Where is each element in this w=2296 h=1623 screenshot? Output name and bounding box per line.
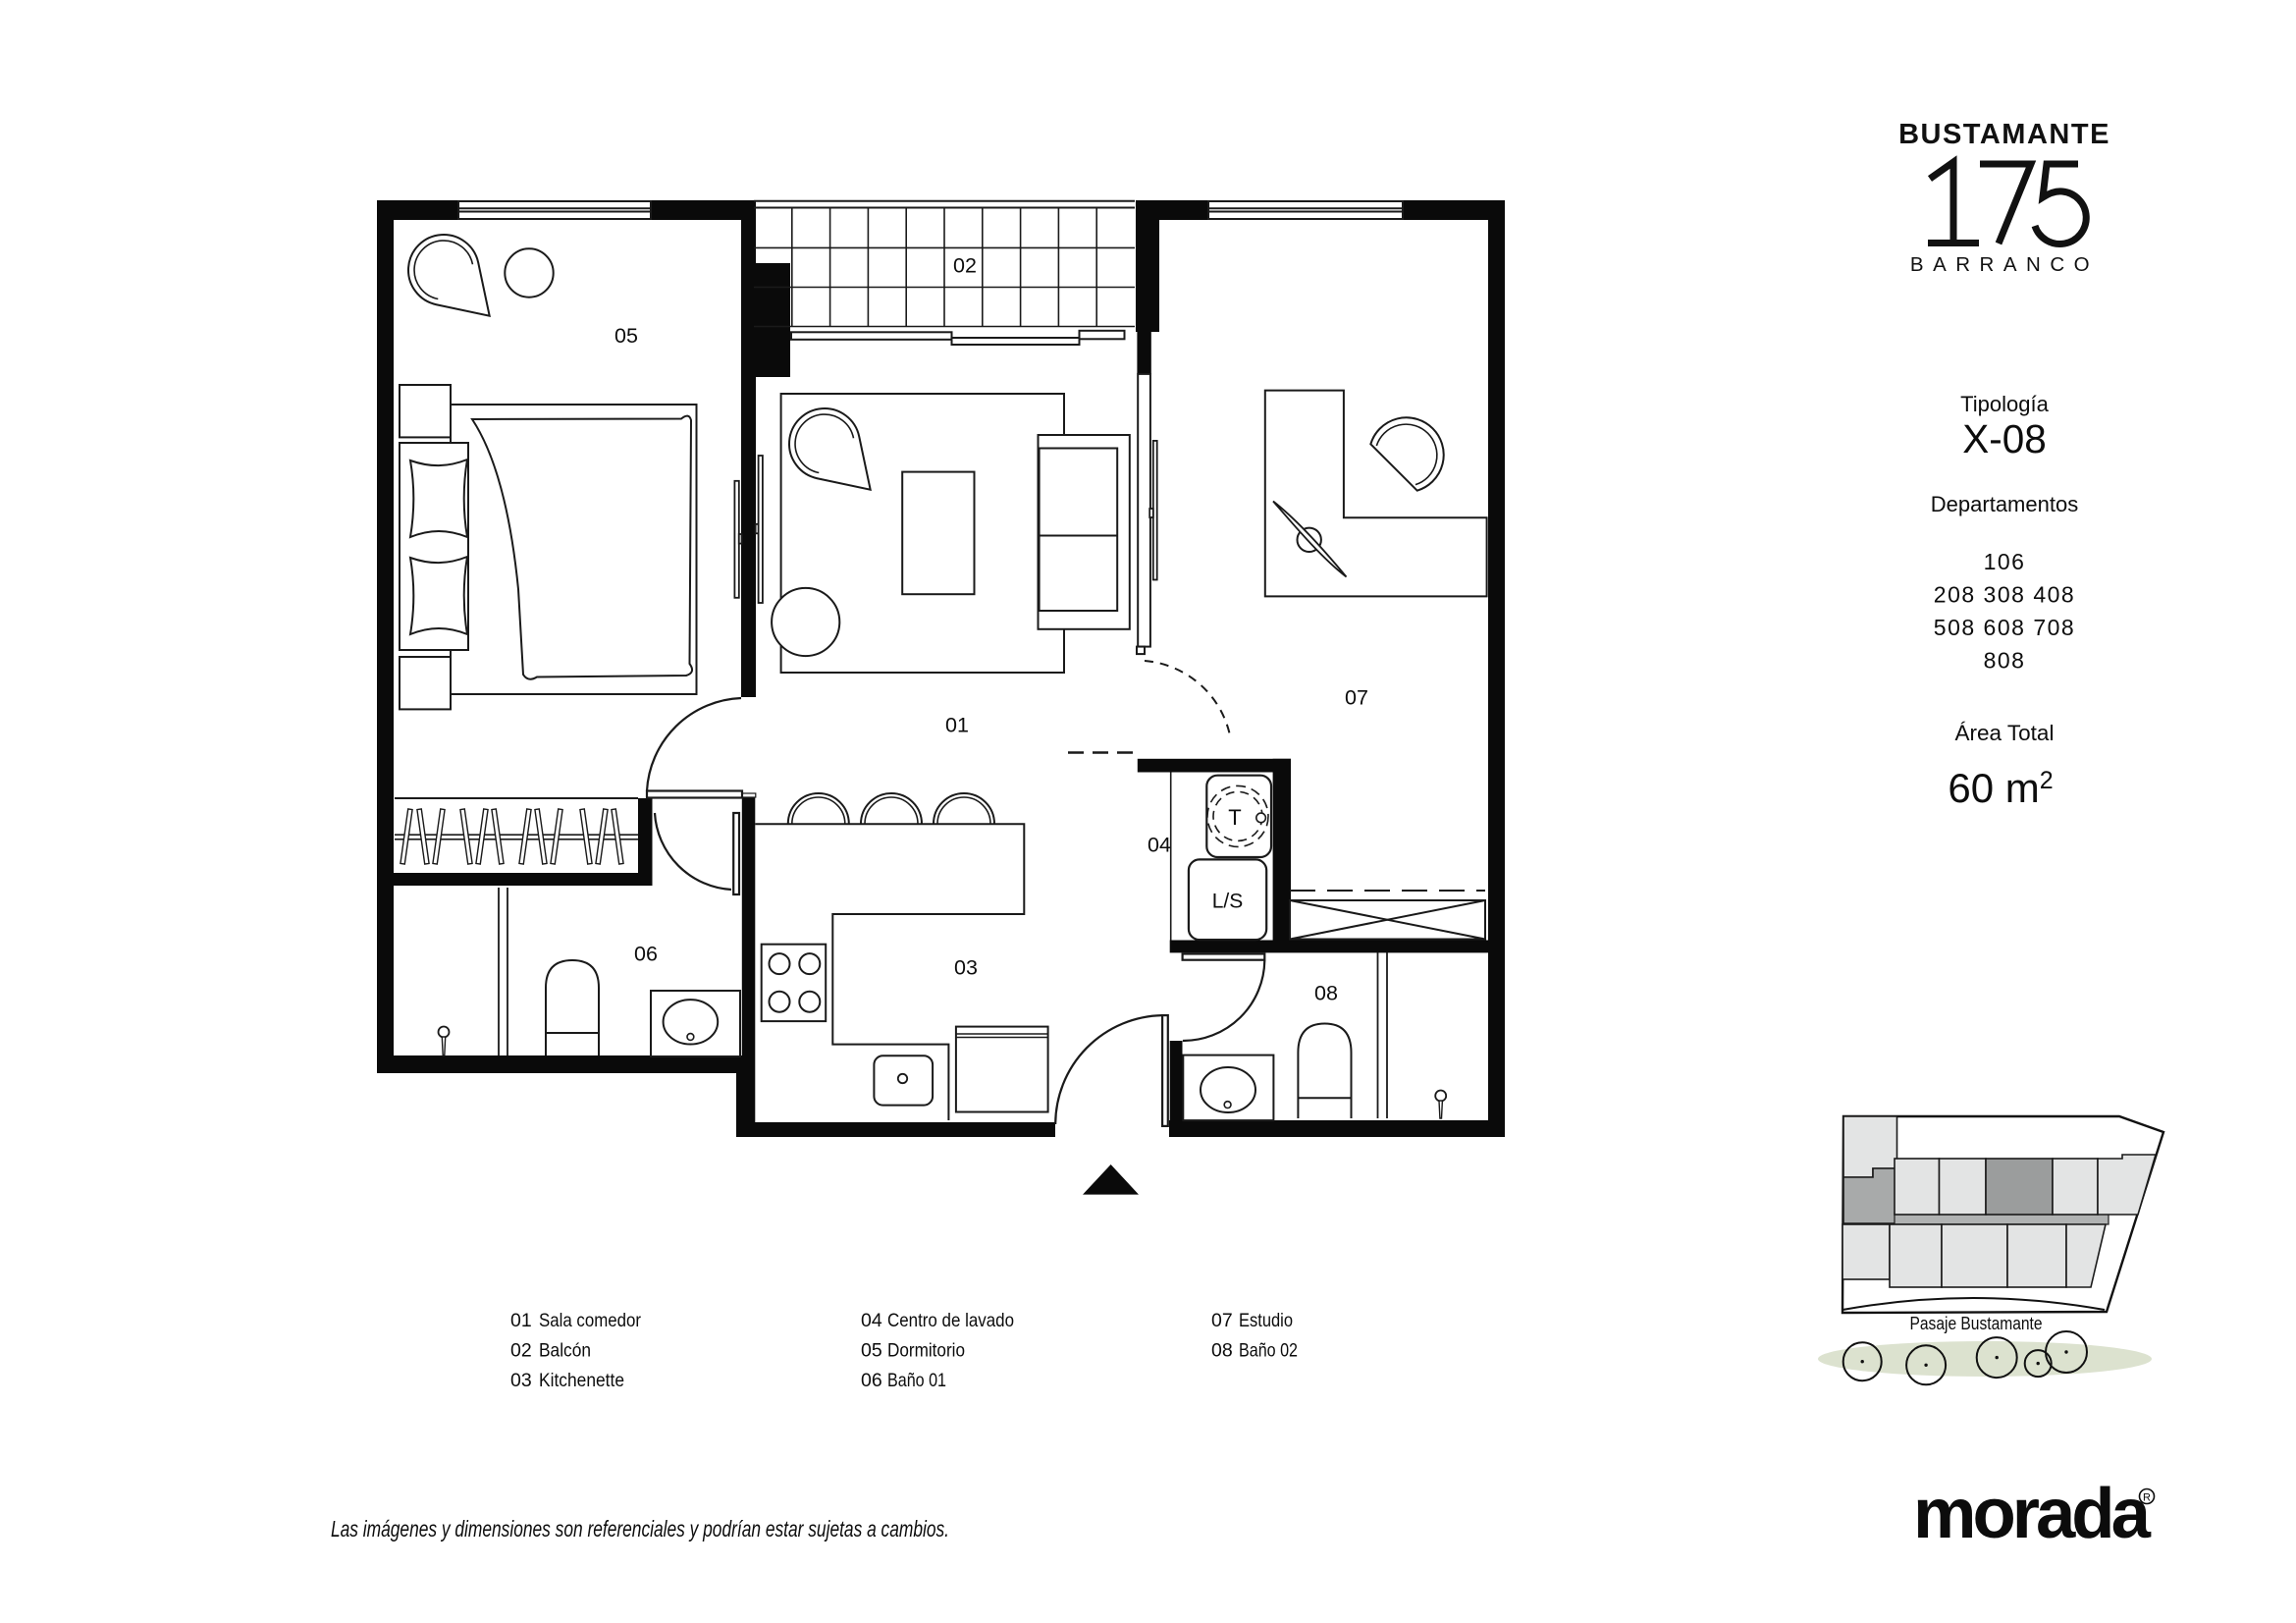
svg-text:T: T — [1228, 805, 1241, 830]
svg-text:Centro de lavado: Centro de lavado — [887, 1310, 1014, 1331]
svg-text:04: 04 — [1148, 834, 1171, 857]
svg-text:Baño 01: Baño 01 — [887, 1370, 946, 1391]
svg-text:morada: morada — [1913, 1474, 2152, 1553]
svg-text:01: 01 — [945, 714, 969, 737]
svg-text:Tipología: Tipología — [1960, 392, 2049, 416]
svg-text:07: 07 — [1211, 1310, 1233, 1331]
svg-text:Pasaje Bustamante: Pasaje Bustamante — [1910, 1313, 2043, 1333]
svg-text:Estudio: Estudio — [1239, 1310, 1293, 1331]
svg-text:60 m2: 60 m2 — [1948, 765, 2053, 811]
svg-text:02: 02 — [510, 1340, 532, 1362]
svg-text:06: 06 — [861, 1370, 882, 1391]
svg-text:BARRANCO: BARRANCO — [1910, 253, 2099, 276]
svg-text:07: 07 — [1345, 686, 1368, 710]
svg-text:Departamentos: Departamentos — [1931, 492, 2078, 516]
svg-text:04: 04 — [861, 1310, 882, 1331]
svg-text:06: 06 — [634, 943, 658, 966]
svg-text:01: 01 — [510, 1310, 532, 1331]
svg-text:Baño 02: Baño 02 — [1239, 1340, 1298, 1362]
svg-text:03: 03 — [510, 1370, 532, 1391]
svg-text:X-08: X-08 — [1962, 416, 2047, 461]
svg-text:R: R — [2143, 1492, 2151, 1504]
svg-text:508 608 708: 508 608 708 — [1934, 615, 2075, 640]
svg-text:208 308 408: 208 308 408 — [1934, 582, 2075, 608]
svg-text:08: 08 — [1211, 1340, 1233, 1362]
svg-text:Área Total: Área Total — [1955, 721, 2055, 745]
svg-text:05: 05 — [861, 1340, 882, 1362]
svg-text:03: 03 — [954, 956, 978, 980]
svg-text:Dormitorio: Dormitorio — [887, 1340, 965, 1362]
svg-text:05: 05 — [614, 324, 638, 348]
svg-text:Las imágenes y dimensiones son: Las imágenes y dimensiones son referenci… — [331, 1516, 949, 1542]
svg-text:106: 106 — [1984, 549, 2026, 574]
svg-text:Sala comedor: Sala comedor — [539, 1310, 641, 1331]
svg-text:Balcón: Balcón — [539, 1340, 591, 1362]
svg-text:08: 08 — [1314, 982, 1338, 1005]
svg-text:BUSTAMANTE: BUSTAMANTE — [1898, 119, 2110, 150]
svg-text:808: 808 — [1984, 648, 2026, 674]
svg-text:L/S: L/S — [1212, 891, 1244, 913]
svg-text:Kitchenette: Kitchenette — [539, 1370, 624, 1391]
svg-text:02: 02 — [953, 254, 977, 278]
